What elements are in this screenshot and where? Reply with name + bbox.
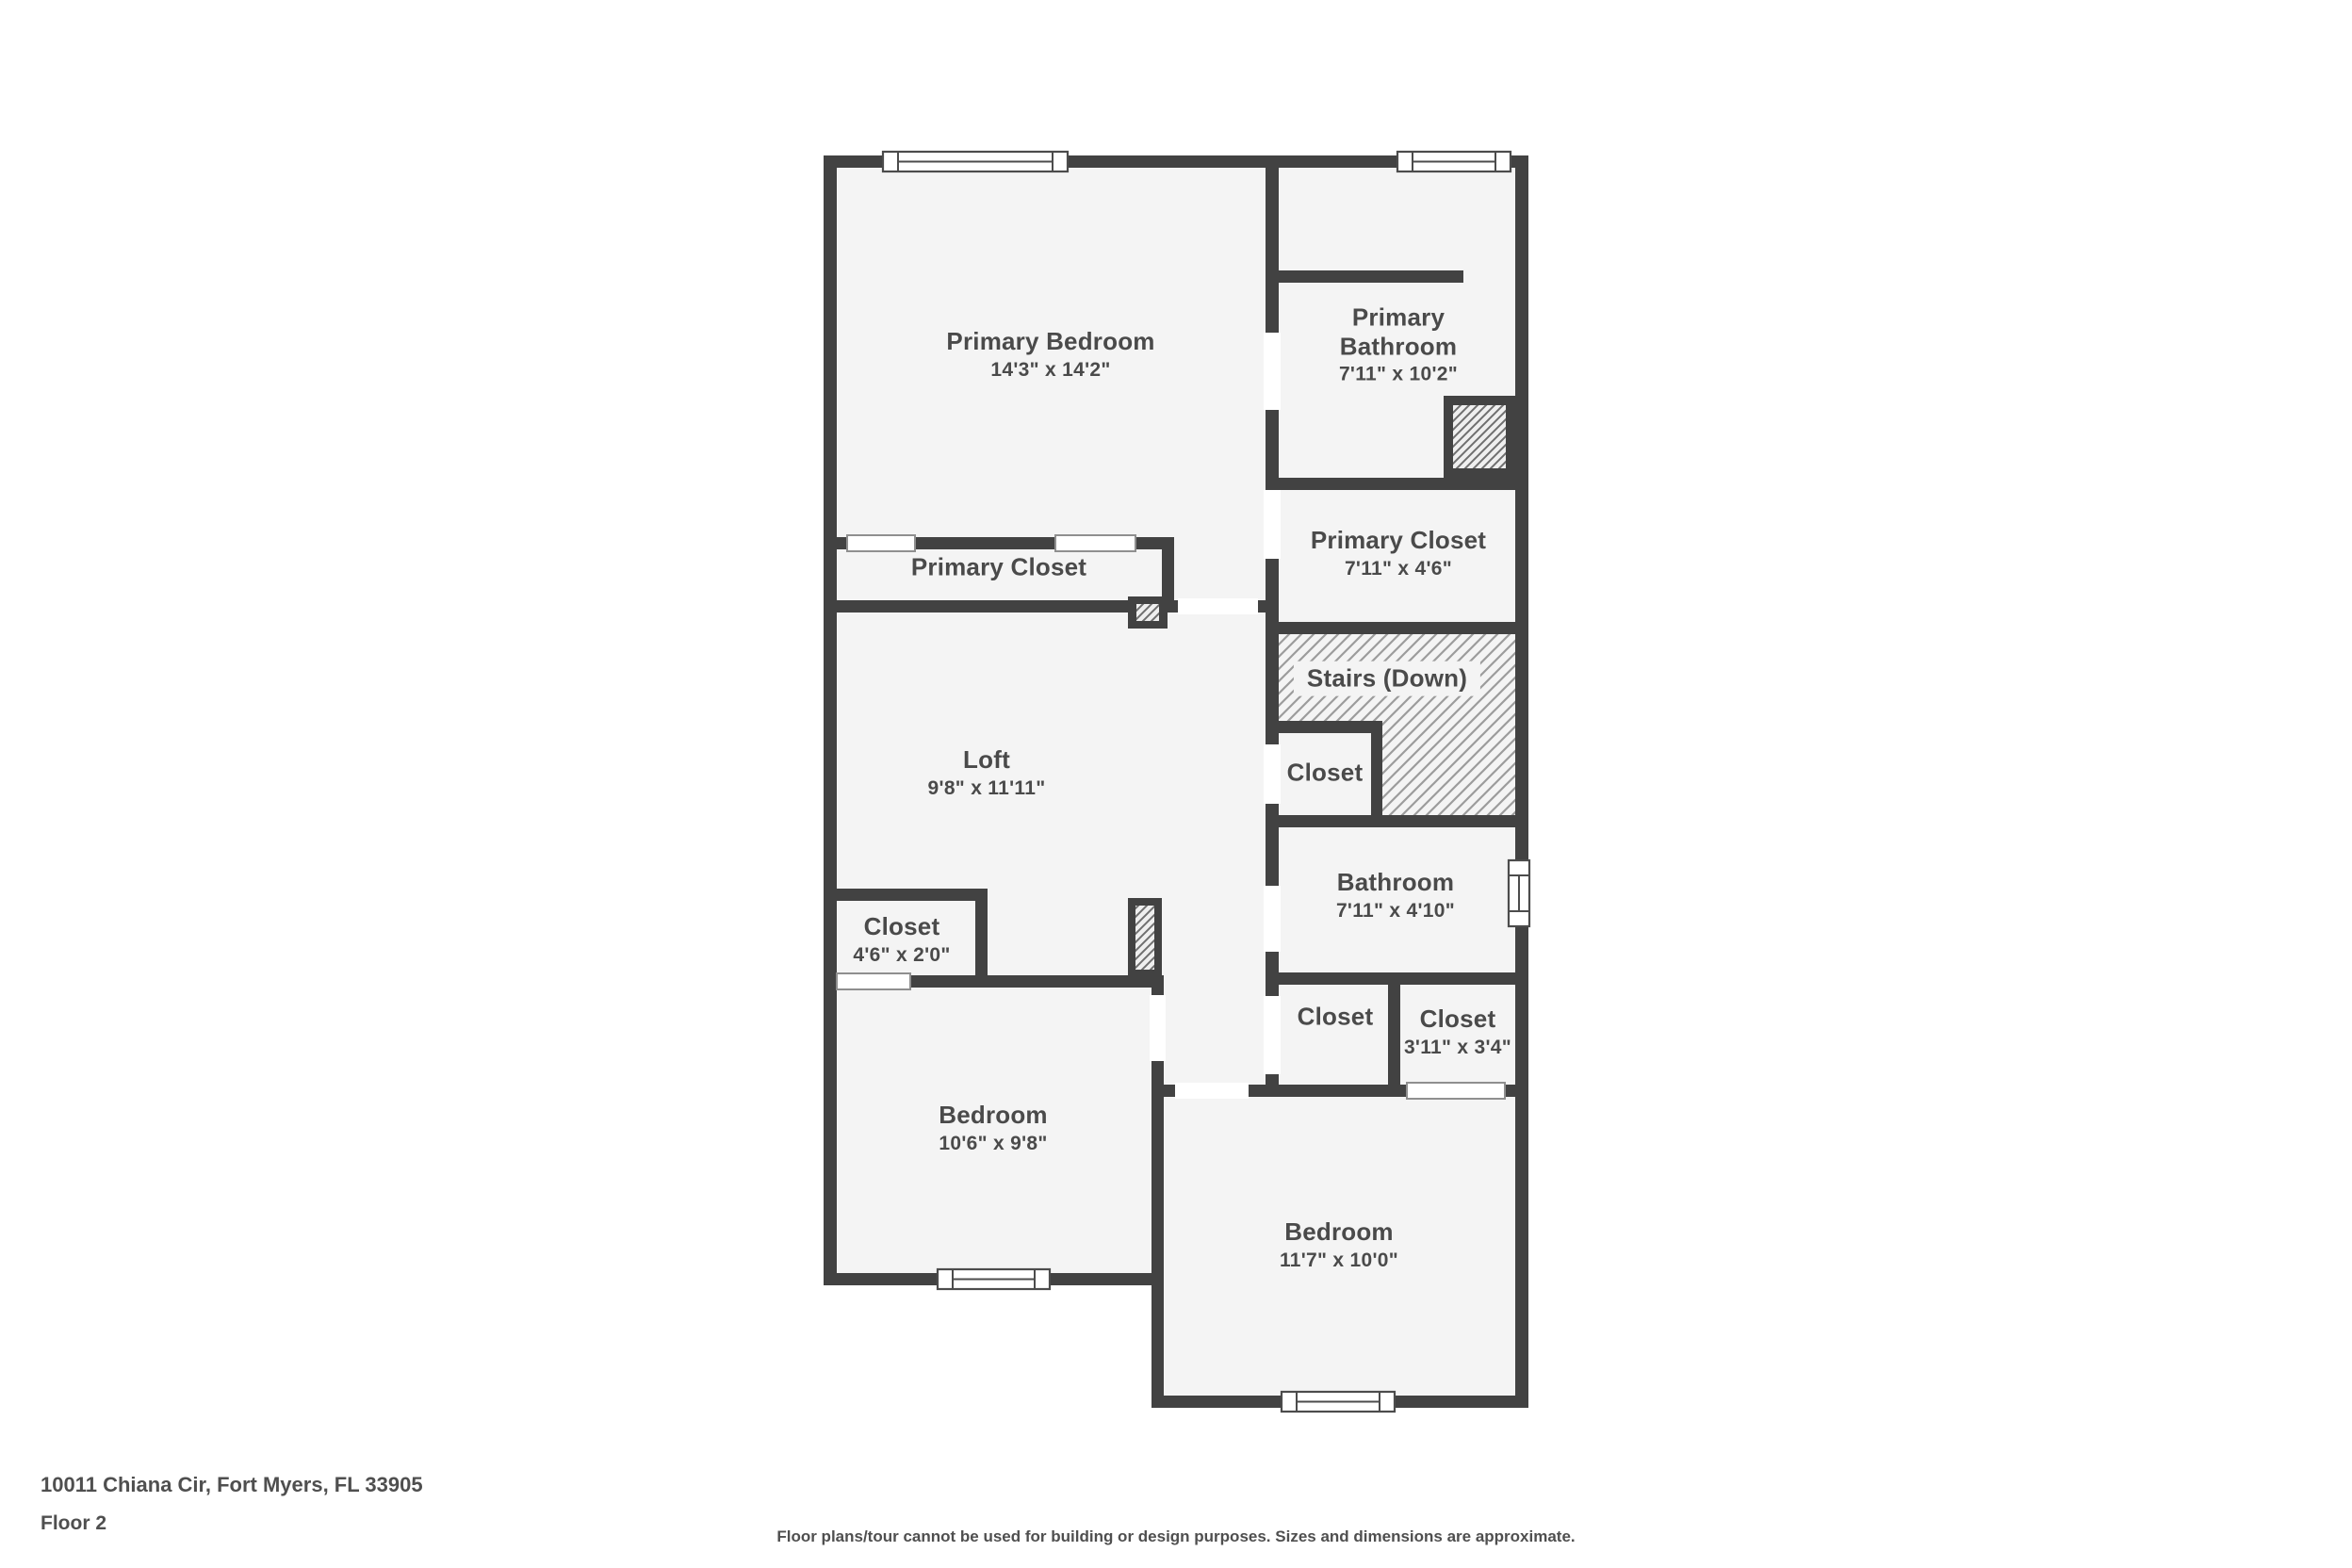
window-bedroom-left — [938, 1269, 1050, 1289]
disclaimer-text: Floor plans/tour cannot be used for buil… — [0, 1527, 2352, 1546]
window-bedroom-right — [1282, 1392, 1395, 1412]
property-address: 10011 Chiana Cir, Fort Myers, FL 33905 — [41, 1473, 423, 1497]
window-primary-bedroom — [883, 152, 1068, 171]
floor-plan-page: Primary Bedroom 14'3" x 14'2" Primary Ba… — [0, 0, 2352, 1568]
window-primary-bathroom — [1397, 152, 1511, 171]
floor-plan-drawing — [0, 0, 2352, 1568]
window-bathroom — [1509, 860, 1529, 926]
